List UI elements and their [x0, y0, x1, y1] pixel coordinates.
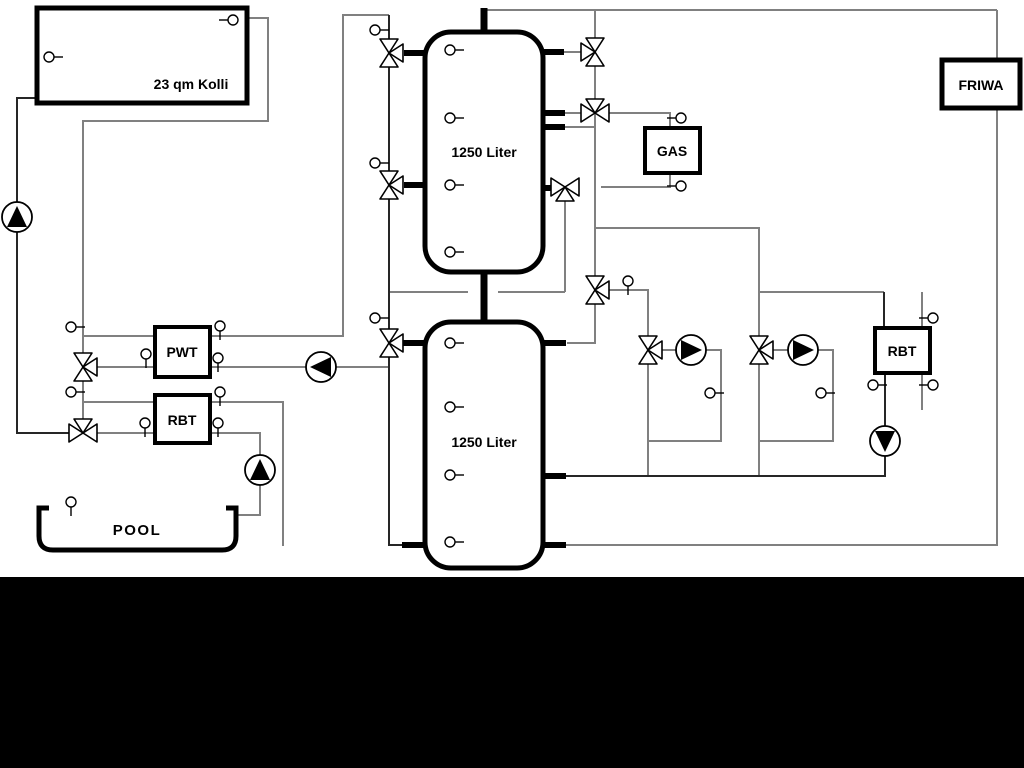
hydraulic-schematic: 23 qm Kolli 1250 Liter 1250 Liter GAS FR…	[0, 0, 1024, 768]
pump-circuit1-icon	[676, 335, 706, 365]
collector-label: 23 qm Kolli	[154, 76, 229, 92]
pump-circuit2-icon	[788, 335, 818, 365]
pump-pwt-icon	[306, 352, 336, 382]
rbt-left-label: RBT	[168, 412, 197, 428]
schematic-svg: 23 qm Kolli 1250 Liter 1250 Liter GAS FR…	[0, 0, 1024, 768]
pool-label: POOL	[113, 522, 162, 539]
pwt-label: PWT	[166, 344, 198, 360]
pump-pool-icon	[245, 455, 275, 485]
bottom-black-band	[0, 577, 1024, 768]
lower-tank-label: 1250 Liter	[451, 434, 517, 450]
pump-solar-icon	[2, 202, 32, 232]
rbt-right-label: RBT	[888, 343, 917, 359]
friwa-label: FRIWA	[958, 77, 1003, 93]
pump-rbt-right-icon	[870, 426, 900, 456]
upper-tank-label: 1250 Liter	[451, 144, 517, 160]
gas-boiler-label: GAS	[657, 143, 687, 159]
